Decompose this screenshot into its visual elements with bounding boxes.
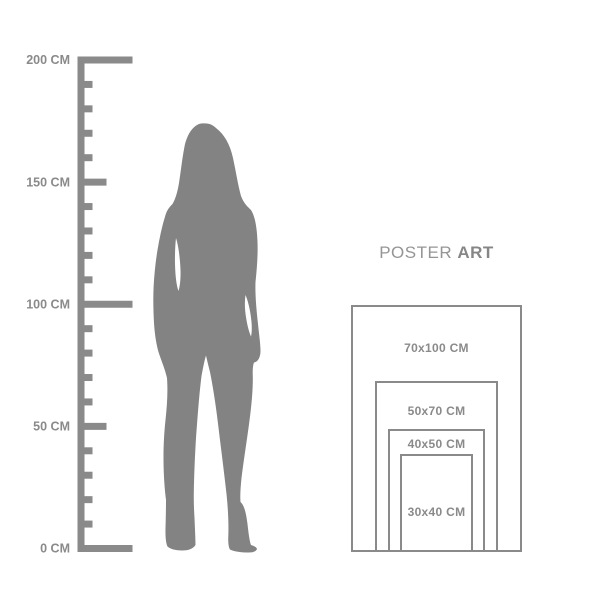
ruler-tick-30cm xyxy=(78,472,93,479)
poster-size-guide: 0 CM50 CM100 CM150 CM200 CM POSTER ART 7… xyxy=(0,0,600,600)
ruler-label-0cm: 0 CM xyxy=(40,542,70,556)
ruler-label-50cm: 50 CM xyxy=(33,420,70,434)
ruler-tick-120cm xyxy=(78,252,93,259)
ruler-tick-10cm xyxy=(78,521,93,528)
ruler-tick-140cm xyxy=(78,203,93,210)
ruler-label-200cm: 200 CM xyxy=(26,53,70,67)
ruler-label-150cm: 150 CM xyxy=(26,175,70,189)
woman-silhouette-body xyxy=(153,123,260,552)
ruler-label-100cm: 100 CM xyxy=(26,297,70,311)
ruler-tick-0cm xyxy=(78,545,133,552)
brand-title-bold: ART xyxy=(457,243,493,262)
ruler-tick-170cm xyxy=(78,130,93,137)
poster-size-label-70x100: 70x100 CM xyxy=(353,307,520,355)
ruler-tick-100cm xyxy=(78,301,133,308)
ruler-tick-200cm xyxy=(78,57,133,64)
ruler-tick-90cm xyxy=(78,325,93,332)
ruler-tick-150cm xyxy=(78,179,107,186)
ruler-tick-50cm xyxy=(78,423,107,430)
ruler-tick-40cm xyxy=(78,447,93,454)
brand-title-regular: POSTER xyxy=(379,243,452,262)
ruler-tick-70cm xyxy=(78,374,93,381)
ruler-tick-160cm xyxy=(78,154,93,161)
ruler-tick-130cm xyxy=(78,227,93,234)
poster-size-label-40x50: 40x50 CM xyxy=(390,431,484,451)
height-ruler: 0 CM50 CM100 CM150 CM200 CM xyxy=(0,0,160,600)
ruler-tick-180cm xyxy=(78,105,93,112)
ruler-tick-80cm xyxy=(78,350,93,357)
brand-title: POSTER ART xyxy=(350,244,523,263)
poster-size-label-30x40: 30x40 CM xyxy=(402,456,471,519)
ruler-tick-110cm xyxy=(78,276,93,283)
ruler-tick-20cm xyxy=(78,496,93,503)
poster-size-label-50x70: 50x70 CM xyxy=(377,383,495,418)
woman-silhouette xyxy=(140,115,280,560)
ruler-tick-190cm xyxy=(78,81,93,88)
ruler-tick-60cm xyxy=(78,398,93,405)
poster-size-rect-30x40: 30x40 CM xyxy=(400,454,473,552)
